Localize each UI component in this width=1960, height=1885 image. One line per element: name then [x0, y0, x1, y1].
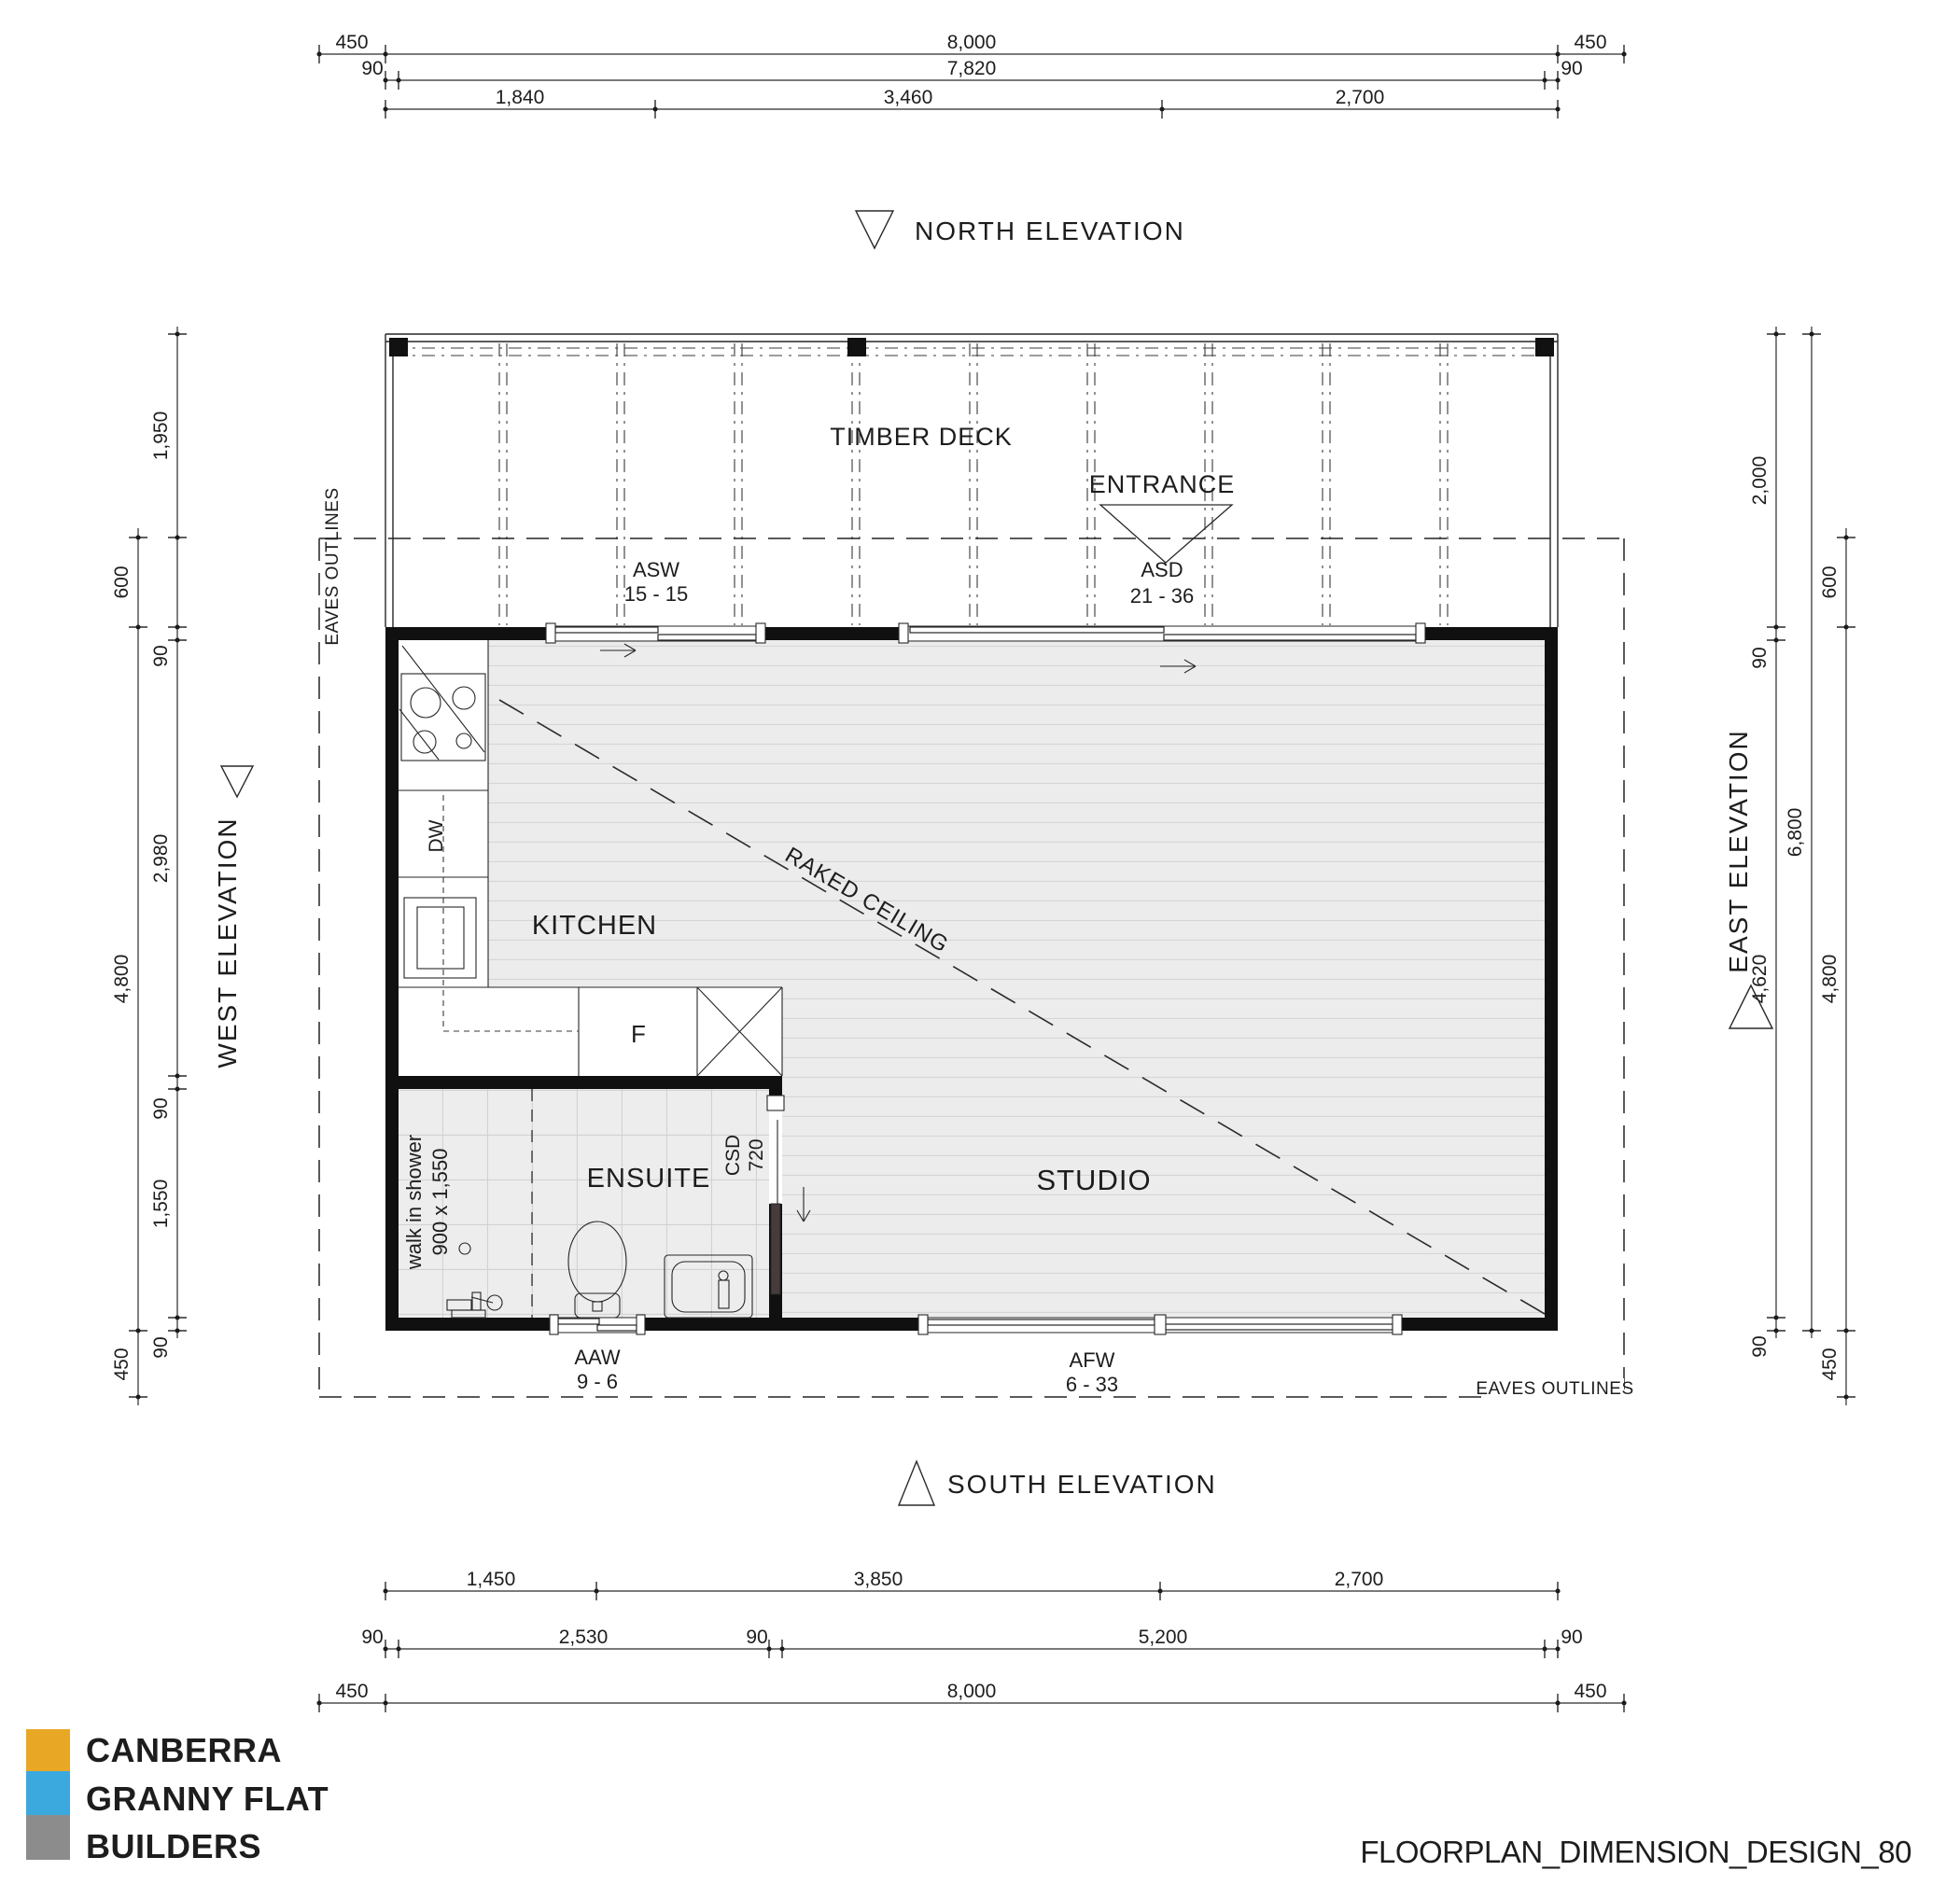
east-wall	[1545, 627, 1558, 1331]
north-wall-segment	[1425, 627, 1558, 640]
logo-line3: BUILDERS	[86, 1827, 261, 1865]
dim-bottom-1450: 1,450	[467, 1569, 516, 1590]
drawing-title: FLOORPLAN_DIMENSION_DESIGN_80	[1360, 1835, 1911, 1869]
logo-blue-square	[26, 1771, 70, 1815]
fridge-label: F	[631, 1020, 646, 1048]
dim-top-450-left: 450	[335, 32, 368, 53]
entrance-label: ENTRANCE	[1089, 470, 1236, 498]
dim-west-450: 450	[111, 1347, 133, 1380]
dim-top-3460: 3,460	[884, 87, 933, 108]
dim-bottom-90b: 90	[746, 1627, 767, 1648]
asd-code: ASD	[1141, 558, 1183, 581]
north-wall-segment	[765, 627, 899, 640]
deck-post	[389, 338, 408, 356]
afw-code: AFW	[1070, 1348, 1115, 1372]
dim-top-90-right: 90	[1561, 58, 1582, 79]
dim-east-2000: 2,000	[1749, 456, 1771, 506]
kitchen-label: KITCHEN	[532, 911, 657, 941]
asd-size: 21 - 36	[1130, 584, 1195, 607]
walk-in-shower-size: 900 x 1,550	[428, 1149, 452, 1256]
dim-top-450-right: 450	[1574, 32, 1606, 53]
dim-east-600: 600	[1819, 565, 1841, 598]
north-elevation-label: NORTH ELEVATION	[915, 216, 1185, 245]
walk-in-shower-label: walk in shower	[402, 1135, 426, 1270]
dim-bottom-2530: 2,530	[559, 1627, 609, 1648]
dishwasher-label: DW	[426, 819, 447, 852]
dim-west-600: 600	[111, 565, 133, 598]
west-elevation-label: WEST ELEVATION	[213, 817, 242, 1068]
dim-top-8000: 8,000	[947, 32, 997, 53]
csd-code: CSD	[722, 1135, 744, 1176]
logo-line2: GRANNY FLAT	[86, 1780, 329, 1818]
dim-top-1840: 1,840	[496, 87, 545, 108]
west-wall	[385, 627, 399, 1331]
studio-label: STUDIO	[1036, 1164, 1151, 1196]
dim-top-2700: 2,700	[1336, 87, 1385, 108]
dim-west-2980: 2,980	[150, 834, 172, 884]
aaw-code: AAW	[574, 1346, 621, 1369]
deck-post	[1535, 338, 1554, 356]
dim-west-1550: 1,550	[150, 1180, 172, 1229]
dim-east-4800: 4,800	[1819, 955, 1841, 1004]
deck-label: TIMBER DECK	[830, 423, 1013, 451]
south-wall-segment	[385, 1318, 553, 1331]
ensuite-partition-wall	[399, 1076, 782, 1089]
eaves-outlines-label-bottom: EAVES OUTLINES	[1476, 1379, 1633, 1399]
south-wall-segment	[641, 1318, 918, 1331]
dim-east-6800: 6,800	[1785, 808, 1806, 858]
floorplan-drawing: 450 8,000 450 90 7,820 90 1,840 3,460 2,…	[0, 0, 1960, 1885]
dim-bottom-450-right: 450	[1574, 1681, 1606, 1702]
dim-west-90b: 90	[150, 1097, 172, 1119]
dim-west-1950: 1,950	[150, 412, 172, 461]
dim-west-90a: 90	[150, 645, 172, 666]
dim-bottom-450-left: 450	[335, 1681, 368, 1702]
north-wall-segment	[385, 627, 546, 640]
ensuite-label: ENSUITE	[587, 1164, 711, 1194]
asw-code: ASW	[633, 558, 679, 581]
logo-gray-square	[26, 1815, 70, 1860]
south-elevation-label: SOUTH ELEVATION	[947, 1470, 1217, 1499]
csd-size: 720	[746, 1138, 767, 1171]
dim-bottom-5200: 5,200	[1139, 1627, 1188, 1648]
dim-bottom-2700: 2,700	[1335, 1569, 1384, 1590]
dim-east-90b: 90	[1749, 1335, 1771, 1357]
dim-bottom-90c: 90	[1561, 1627, 1582, 1648]
afw-size: 6 - 33	[1066, 1373, 1118, 1396]
dim-east-450: 450	[1819, 1347, 1841, 1380]
dim-bottom-3850: 3,850	[854, 1569, 903, 1590]
dim-bottom-90a: 90	[361, 1627, 383, 1648]
asw-size: 15 - 15	[624, 582, 689, 606]
east-elevation-label: EAST ELEVATION	[1724, 729, 1753, 972]
dim-west-90c: 90	[150, 1336, 172, 1358]
eaves-outlines-label-left: EAVES OUTLINES	[323, 487, 343, 645]
dim-west-4800: 4,800	[111, 955, 133, 1004]
aaw-size: 9 - 6	[577, 1370, 618, 1393]
dim-east-90a: 90	[1749, 647, 1771, 668]
logo-line1: CANBERRA	[86, 1731, 282, 1769]
south-wall-segment	[1402, 1318, 1558, 1331]
ensuite-tile-floor	[399, 1089, 769, 1318]
logo-gold-square	[26, 1729, 70, 1771]
csd-door-panel	[771, 1204, 780, 1294]
deck-post	[847, 338, 866, 356]
dim-bottom-8000: 8,000	[947, 1681, 997, 1702]
dim-top-90-left: 90	[361, 58, 383, 79]
dim-top-7820: 7,820	[947, 58, 997, 79]
